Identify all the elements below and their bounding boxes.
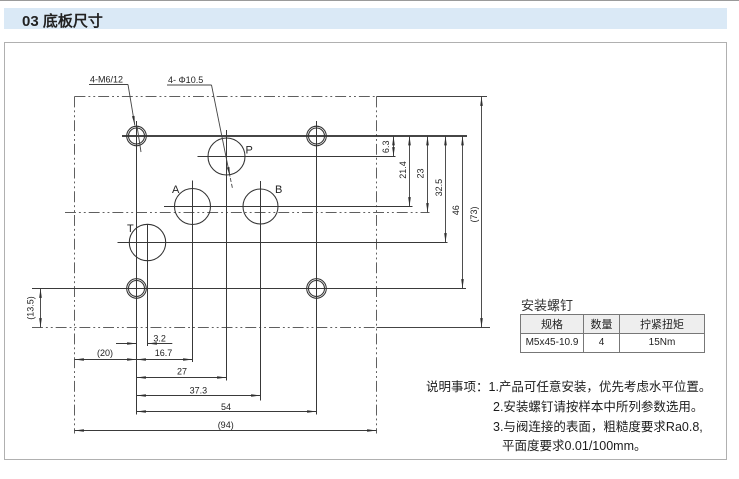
svg-text:(13.5): (13.5) bbox=[25, 296, 35, 320]
svg-text:46: 46 bbox=[451, 205, 461, 215]
svg-text:(73): (73) bbox=[469, 206, 479, 222]
svg-text:32.5: 32.5 bbox=[434, 179, 444, 197]
svg-text:B: B bbox=[275, 184, 282, 196]
svg-text:4-M6/12: 4-M6/12 bbox=[90, 75, 123, 85]
svg-text:(94): (94) bbox=[218, 420, 234, 430]
svg-text:37.3: 37.3 bbox=[190, 386, 208, 396]
svg-text:4- Φ10.5: 4- Φ10.5 bbox=[168, 75, 203, 85]
svg-text:16.7: 16.7 bbox=[155, 348, 173, 358]
svg-text:3.2: 3.2 bbox=[153, 333, 166, 343]
svg-text:A: A bbox=[172, 184, 180, 196]
svg-text:54: 54 bbox=[221, 402, 231, 412]
svg-text:21.4: 21.4 bbox=[398, 161, 408, 179]
svg-text:(20): (20) bbox=[97, 348, 113, 358]
svg-text:P: P bbox=[246, 145, 253, 157]
svg-text:6.3: 6.3 bbox=[381, 141, 391, 154]
svg-text:T: T bbox=[127, 223, 134, 235]
svg-text:27: 27 bbox=[177, 367, 187, 377]
svg-text:23: 23 bbox=[416, 168, 426, 178]
